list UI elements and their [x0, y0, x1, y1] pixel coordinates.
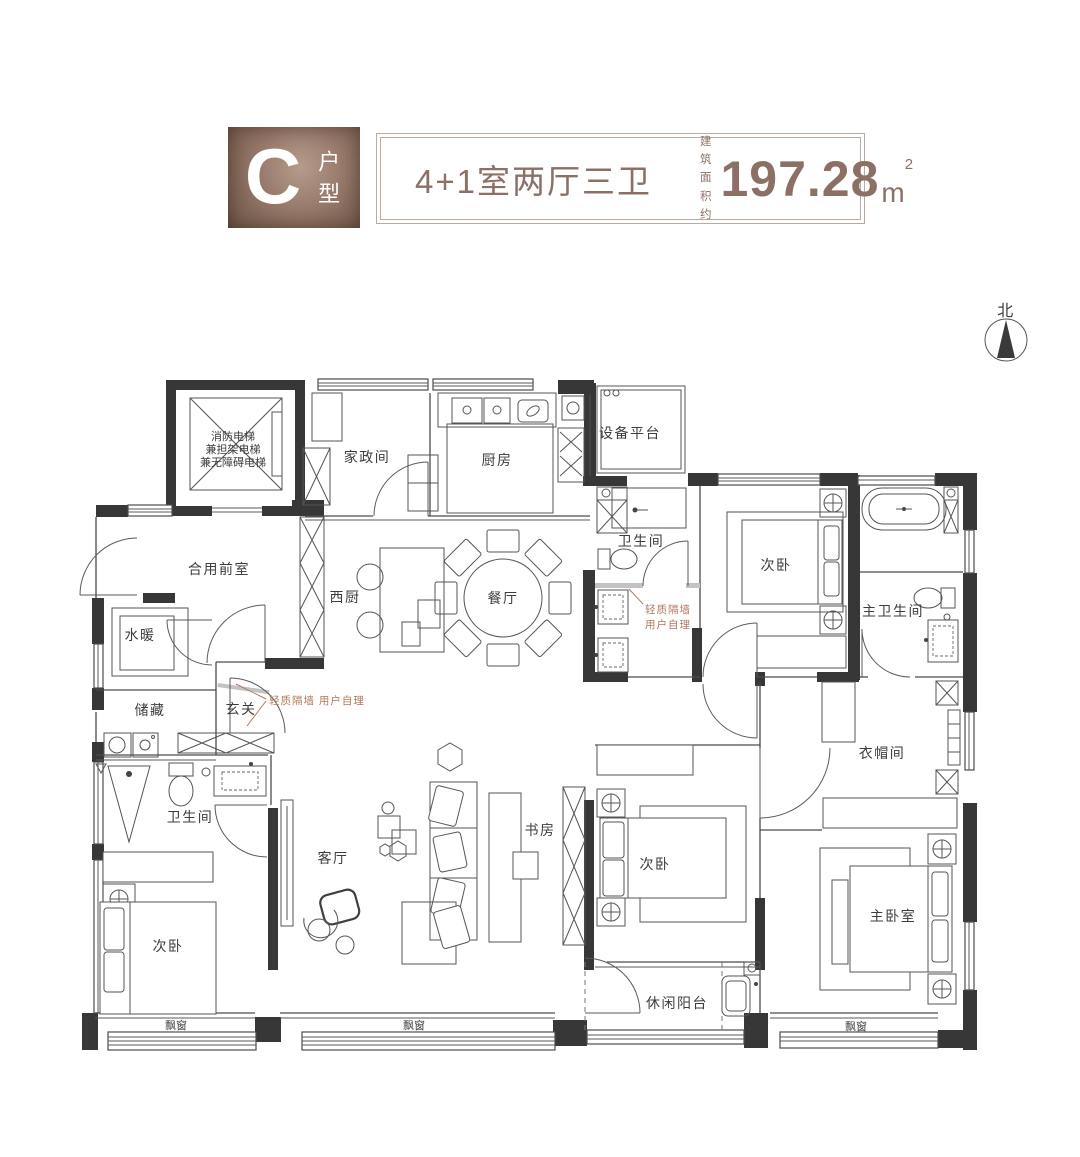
room-label-west-kitchen: 西厨	[330, 589, 361, 605]
room-label-master-bath: 主卫生间	[862, 603, 924, 619]
partition-note-bath-line2: 用户自理	[645, 618, 691, 631]
room-label-kitchen: 厨房	[482, 452, 513, 468]
room-label-housekeeping: 家政间	[344, 449, 391, 465]
frontroom-door	[207, 605, 265, 663]
room-label-bay-mid: 飘窗	[403, 1018, 425, 1032]
room-label-elevator-2: 兼担架电梯	[206, 442, 261, 456]
window-bedroom-tr-top	[718, 474, 820, 485]
housekeeping-door	[374, 462, 428, 516]
window-left-bath	[94, 762, 103, 844]
duct-column-westkitchen	[300, 517, 324, 657]
room-label-balcony: 休闲阳台	[646, 995, 708, 1011]
shoe-cabinet	[178, 733, 274, 753]
window-housekeeping-top	[318, 379, 428, 390]
room-label-equipment-platform: 设备平台	[599, 425, 661, 441]
bath-left-fixtures	[96, 762, 266, 842]
room-label-bedroom-top-right: 次卧	[761, 557, 792, 573]
window-right-masterbath	[965, 530, 974, 573]
duct-column-housekeeping	[303, 448, 330, 505]
wardrobe-bedroom-bl	[103, 852, 213, 882]
room-label-bedroom-bottom-mid: 次卧	[640, 856, 671, 872]
room-label-bay-right: 飘窗	[845, 1019, 867, 1033]
room-label-elevator-1: 消防电梯	[211, 429, 255, 443]
room-label-bedroom-bottom-left: 次卧	[153, 938, 184, 954]
duct-column-study	[563, 787, 585, 945]
wardrobe-cloakroom-left	[822, 682, 855, 742]
bay-window-mid	[302, 1032, 555, 1050]
room-label-bath-left: 卫生间	[167, 809, 214, 825]
window-masterbath-top	[858, 476, 935, 485]
room-label-living: 客厅	[318, 850, 349, 866]
room-label-plumbing: 水暖	[125, 627, 156, 643]
room-label-foyer: 玄关	[226, 701, 257, 717]
window-frontroom-top	[128, 505, 172, 516]
bay-window-left	[108, 1032, 256, 1050]
compass: 北	[985, 302, 1027, 361]
west-kitchen-island	[357, 548, 444, 652]
wardrobe-bedroom-bm	[597, 745, 693, 775]
room-label-master-bedroom: 主卧室	[870, 908, 917, 924]
window-right-master	[965, 922, 974, 990]
room-label-bay-left: 飘窗	[165, 1018, 187, 1032]
entry-door	[80, 538, 137, 595]
room-label-elevator-3: 兼无障碍电梯	[200, 455, 266, 469]
room-label-cloakroom: 衣帽间	[859, 745, 906, 761]
masterbath-door	[862, 629, 910, 677]
room-label-shared-front-room: 合用前室	[188, 561, 250, 577]
floorplan-drawing: 北	[0, 0, 1080, 1157]
wardrobe-cloakroom-bottom	[823, 798, 957, 828]
study-furniture	[489, 793, 538, 942]
balcony-railing	[587, 1030, 744, 1044]
window-kitchen-top	[433, 379, 533, 390]
bath-left-door	[215, 805, 267, 857]
bedroom-tr-door	[703, 623, 757, 677]
bedroom-bm-door	[703, 684, 757, 738]
room-label-dining: 餐厅	[488, 590, 519, 606]
window-right-cloakroom	[965, 712, 974, 770]
bath-top-fixtures	[594, 488, 686, 672]
compass-label: 北	[997, 302, 1015, 320]
wardrobe-bedroom-tr	[757, 636, 846, 668]
bay-window-right	[780, 1032, 938, 1048]
partition-note-foyer: 轻质隔墙 用户自理	[269, 694, 365, 707]
bed-bottom-mid	[597, 789, 746, 926]
window-left-plumbing	[94, 644, 103, 688]
balcony-fixtures	[722, 962, 760, 1016]
room-label-study: 书房	[525, 822, 556, 838]
master-suite-door	[760, 748, 830, 818]
washer-units	[104, 733, 158, 757]
floorplan-page: C 户型 4+1室两厅三卫 建 筑 面积约 197.28 m 2 北	[0, 0, 1080, 1157]
living-furniture	[281, 743, 477, 964]
room-label-storage: 储藏	[135, 702, 166, 718]
duct-column-cloakroom	[936, 681, 960, 794]
room-label-bath-top: 卫生间	[618, 533, 665, 549]
partition-note-bath-line1: 轻质隔墙	[645, 603, 691, 616]
cabinet-housekeeping	[312, 393, 342, 441]
